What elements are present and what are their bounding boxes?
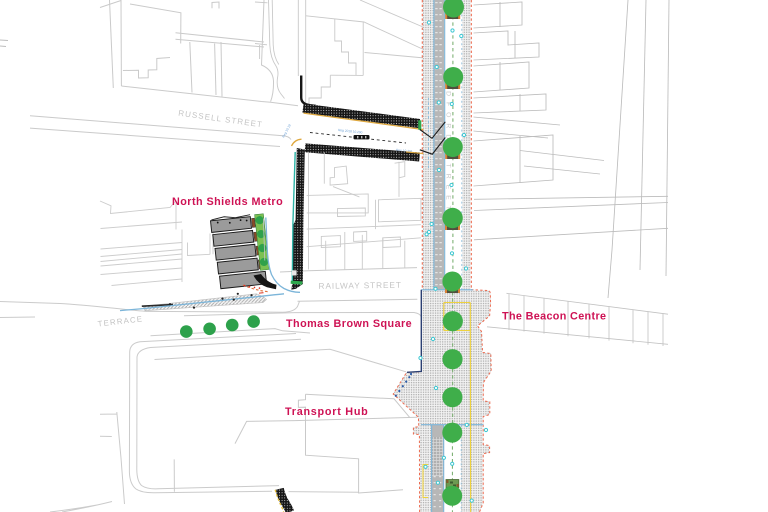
svg-text:Thomas Brown Square: Thomas Brown Square: [286, 318, 412, 330]
svg-text:North Shields Metro: North Shields Metro: [172, 196, 283, 208]
svg-text:The Beacon Centre: The Beacon Centre: [502, 310, 606, 322]
svg-text:Transport Hub: Transport Hub: [285, 406, 369, 418]
svg-text:RAILWAY STREET: RAILWAY STREET: [318, 280, 401, 291]
